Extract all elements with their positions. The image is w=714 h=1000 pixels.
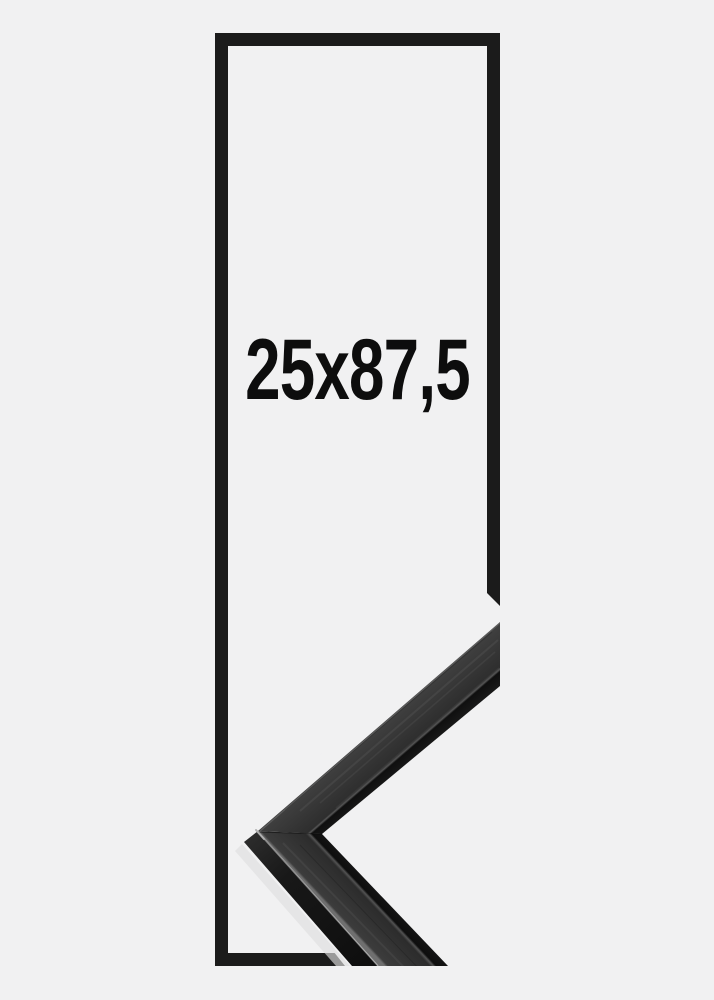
moulding-mitre-seam (259, 832, 322, 834)
moulding-lower-arm (258, 831, 448, 966)
moulding-upper-arm (258, 622, 500, 834)
frame-outline-right (487, 33, 500, 966)
moulding-shadow (235, 844, 350, 966)
frame-outline-top (215, 33, 500, 46)
moulding-side-face (244, 831, 378, 966)
moulding-upper-edge-highlight (259, 623, 500, 832)
photo-backdrop (240, 592, 500, 966)
moulding-texture-upper (285, 632, 499, 811)
product-image: 25x87,5 (0, 0, 714, 1000)
frame-outline-bottom (215, 953, 500, 966)
moulding-texture-lower (268, 843, 447, 998)
frame-corner-photo (0, 0, 714, 1000)
frame-outline-left (215, 33, 228, 966)
size-label: 25x87,5 (252, 327, 463, 417)
moulding-tip-highlight (256, 830, 264, 839)
moulding-outer-edge-highlight (258, 832, 378, 966)
